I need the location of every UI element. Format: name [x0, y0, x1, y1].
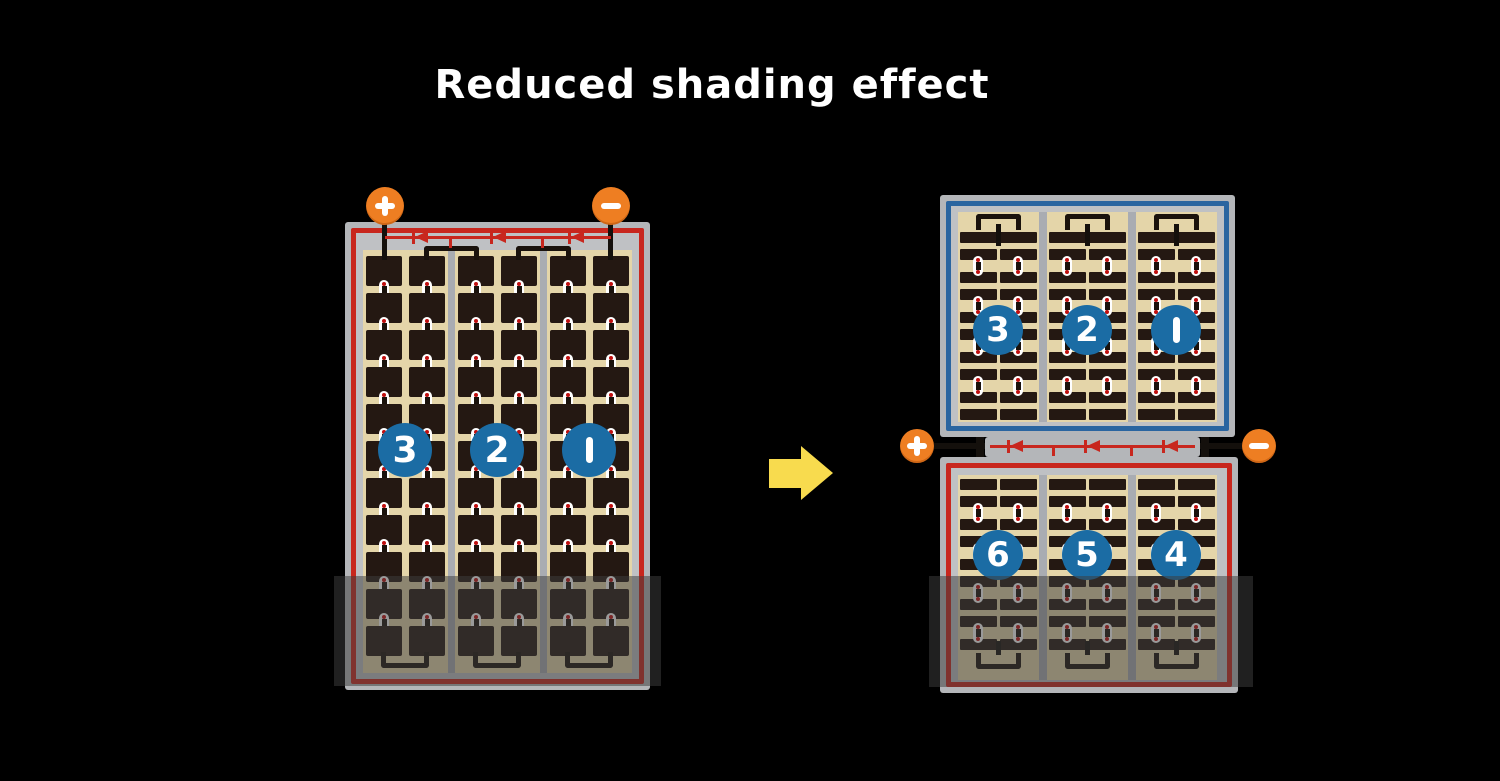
cell-connector: [1013, 376, 1023, 396]
ribbon-bar: [1194, 302, 1199, 310]
half-cut-cell: [960, 409, 997, 420]
top-string-bracket: [424, 246, 479, 260]
solder-dot: [1065, 390, 1069, 394]
left-string-1-badge: 1: [562, 423, 616, 477]
bypass-diode-icon: [490, 231, 506, 244]
solder-dot: [1194, 517, 1198, 521]
right-top-string-2-badge: 2: [1062, 305, 1112, 355]
right-bottom-string-6-badge: 6: [973, 530, 1023, 580]
half-cut-cell: [1089, 232, 1126, 243]
solder-dot: [1065, 517, 1069, 521]
left-string-2-label: 2: [484, 430, 509, 471]
right-shading-overlay: [929, 576, 1253, 687]
solder-dot: [976, 517, 980, 521]
plus-terminal-icon: [906, 435, 928, 457]
cell-connector: [1013, 503, 1023, 523]
diode-triangle: [1010, 440, 1023, 452]
bypass-diode-icon: [568, 231, 584, 244]
solder-dot: [1154, 390, 1158, 394]
half-cut-cell: [1138, 409, 1175, 420]
section-divider: [1039, 212, 1047, 422]
solder-dot: [1154, 350, 1158, 354]
section-divider: [1128, 212, 1136, 422]
bypass-diode-icon: [412, 231, 428, 244]
solder-dot: [1105, 350, 1109, 354]
half-cut-cell: [1089, 409, 1126, 420]
plus-terminal-icon: [374, 195, 396, 217]
diode-triangle: [571, 231, 584, 243]
cell-connector: [973, 503, 983, 523]
solder-dot: [1105, 517, 1109, 521]
right-bottom-string-5-label: 5: [1075, 535, 1099, 575]
ribbon-bar: [1105, 509, 1110, 517]
minus-terminal-icon: [1248, 435, 1270, 457]
diode-tap-line: [541, 239, 544, 248]
ribbon-bar: [1016, 302, 1021, 310]
solder-dot: [976, 350, 980, 354]
right-top-string-3-label: 3: [986, 310, 1010, 350]
solder-dot: [1016, 350, 1020, 354]
right-top-string-1-label: 1: [1173, 317, 1180, 343]
solder-dot: [976, 270, 980, 274]
right-top-string-3-badge: 3: [973, 305, 1023, 355]
left-string-2-badge: 2: [470, 423, 524, 477]
cell-connector: [1191, 256, 1201, 276]
half-cut-cell: [1089, 479, 1126, 490]
junction-end-connector: [976, 437, 984, 457]
solder-dot: [1065, 350, 1069, 354]
diode-triangle: [1087, 440, 1100, 452]
right-bottom-string-4-label: 4: [1164, 535, 1188, 575]
half-cut-cell: [1138, 232, 1175, 243]
ribbon-bar: [1065, 262, 1070, 270]
junction-end-connector: [1201, 437, 1209, 457]
ribbon-bar: [976, 382, 981, 390]
ribbon-bar: [1065, 509, 1070, 517]
solder-dot: [1016, 270, 1020, 274]
solder-dot: [1016, 390, 1020, 394]
half-cut-cell: [1178, 409, 1215, 420]
ribbon-bar: [1194, 509, 1199, 517]
cell-connector: [1062, 256, 1072, 276]
half-cut-cell: [1000, 409, 1037, 420]
half-cut-cell: [1000, 232, 1037, 243]
right-bottom-string-4-badge: 4: [1151, 530, 1201, 580]
cell-connector: [1191, 376, 1201, 396]
half-cut-cell: [1049, 479, 1086, 490]
ribbon-bar: [1016, 382, 1021, 390]
cell-connector: [1151, 256, 1161, 276]
ribbon-bar: [976, 262, 981, 270]
half-cut-cell: [1178, 479, 1215, 490]
ribbon-bar: [1105, 382, 1110, 390]
ribbon-bar: [1154, 382, 1159, 390]
ribbon-bar: [1154, 302, 1159, 310]
ribbon-bar: [1105, 262, 1110, 270]
cell-connector: [1191, 503, 1201, 523]
left-string-3-badge: 3: [378, 423, 432, 477]
cell-connector: [973, 256, 983, 276]
right-plus-terminal: [900, 429, 934, 463]
half-cut-cell: [1178, 232, 1215, 243]
ribbon-bar: [976, 509, 981, 517]
minus-terminal-icon: [600, 195, 622, 217]
ribbon-bar: [1016, 262, 1021, 270]
diode-tap-line: [1130, 448, 1133, 456]
right-minus-terminal: [1242, 429, 1276, 463]
ribbon-bar: [1105, 302, 1110, 310]
left-minus-terminal: [592, 187, 630, 225]
arrow-head-icon: [801, 446, 833, 500]
ribbon-bar: [1065, 302, 1070, 310]
solder-dot: [1194, 350, 1198, 354]
solder-dot: [1154, 517, 1158, 521]
bracket-stem: [996, 224, 1001, 246]
left-shading-overlay: [334, 576, 661, 686]
diode-tap-line: [449, 239, 452, 248]
solder-dot: [1154, 270, 1158, 274]
bracket-stem: [1174, 224, 1179, 246]
solder-dot: [976, 390, 980, 394]
ribbon-bar: [1194, 262, 1199, 270]
solder-dot: [1016, 517, 1020, 521]
cell-connector: [1102, 376, 1112, 396]
right-top-string-2-label: 2: [1075, 310, 1099, 350]
diode-triangle: [1165, 440, 1178, 452]
left-string-3-label: 3: [392, 430, 417, 471]
arrow-shaft: [769, 459, 802, 488]
half-cut-cell: [960, 232, 997, 243]
cell-connector: [1062, 376, 1072, 396]
half-cut-cell: [1000, 479, 1037, 490]
right-top-string-1-badge: 1: [1151, 305, 1201, 355]
diagram-stage: Reduced shading effect 3 2 1 3 2 1: [0, 0, 1500, 781]
cell-connector: [1062, 503, 1072, 523]
solder-dot: [1194, 390, 1198, 394]
solder-dot: [1105, 270, 1109, 274]
cell-connector: [1151, 503, 1161, 523]
top-string-bracket: [516, 246, 571, 260]
minus-terminal-stem: [608, 220, 613, 260]
half-cut-cell: [1138, 479, 1175, 490]
ribbon-bar: [976, 302, 981, 310]
ribbon-bar: [1154, 262, 1159, 270]
bypass-diode-icon: [1162, 440, 1178, 453]
cell-connector: [1102, 256, 1112, 276]
right-bottom-string-6-label: 6: [986, 535, 1010, 575]
cell-connector: [973, 376, 983, 396]
left-plus-terminal: [366, 187, 404, 225]
diode-tap-line: [1052, 448, 1055, 456]
bypass-diode-icon: [1007, 440, 1023, 453]
solder-dot: [1194, 270, 1198, 274]
cell-connector: [1013, 256, 1023, 276]
left-string-1-label: 1: [586, 437, 593, 463]
ribbon-bar: [1154, 509, 1159, 517]
bypass-diode-icon: [1084, 440, 1100, 453]
cell-connector: [1151, 376, 1161, 396]
half-cut-cell: [960, 479, 997, 490]
ribbon-bar: [1194, 382, 1199, 390]
solder-dot: [1105, 390, 1109, 394]
diode-triangle: [493, 231, 506, 243]
plus-terminal-stem: [382, 220, 387, 260]
solder-dot: [1065, 270, 1069, 274]
bracket-stem: [1085, 224, 1090, 246]
right-bottom-string-5-badge: 5: [1062, 530, 1112, 580]
page-title: Reduced shading effect: [0, 62, 1424, 108]
diode-triangle: [415, 231, 428, 243]
cell-connector: [1102, 503, 1112, 523]
half-cut-cell: [1049, 232, 1086, 243]
ribbon-bar: [1065, 382, 1070, 390]
ribbon-bar: [1016, 509, 1021, 517]
half-cut-cell: [1049, 409, 1086, 420]
